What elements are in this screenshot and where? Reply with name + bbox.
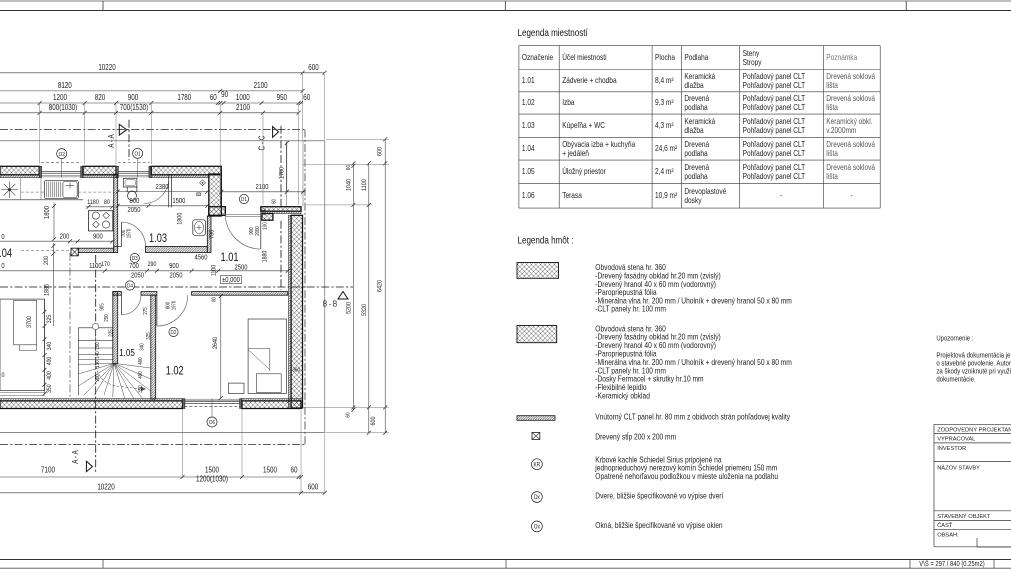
svg-text:800: 800 (165, 302, 172, 309)
svg-text:1.03: 1.03 (522, 120, 535, 130)
svg-text:10,9 m²: 10,9 m² (655, 190, 678, 200)
svg-text:D1: D1 (241, 197, 247, 204)
svg-text:Stropy: Stropy (743, 57, 762, 67)
svg-text:Označenie: Označenie (522, 52, 553, 62)
svg-text:900: 900 (249, 227, 256, 234)
svg-text:1500: 1500 (263, 467, 277, 475)
svg-text:200: 200 (261, 208, 268, 215)
svg-text:60: 60 (291, 467, 298, 475)
svg-text:950: 950 (277, 95, 287, 103)
svg-text:dokumentácie.: dokumentácie. (936, 376, 975, 384)
svg-text:325: 325 (145, 332, 152, 340)
svg-text:600: 600 (376, 146, 384, 156)
svg-text:150: 150 (95, 342, 102, 350)
svg-text:2100: 2100 (236, 104, 250, 112)
svg-text:KR: KR (534, 462, 541, 469)
svg-text:1780: 1780 (177, 95, 191, 103)
svg-text:dlažba: dlažba (684, 125, 704, 135)
svg-text:Pohľadový panel CLT: Pohľadový panel CLT (743, 80, 806, 90)
svg-text:2000: 2000 (255, 226, 262, 236)
svg-text:820: 820 (95, 95, 105, 103)
svg-text:Podlaha: Podlaha (684, 52, 709, 62)
svg-text:Vnútorný CLT panel hr. 80 mm z: Vnútorný CLT panel hr. 80 mm z obidvoch … (595, 412, 790, 422)
svg-text:250: 250 (104, 314, 111, 322)
svg-text:O1: O1 (135, 151, 141, 158)
svg-text:1200: 1200 (53, 95, 67, 103)
svg-text:1100: 1100 (89, 262, 102, 270)
svg-text:80: 80 (104, 198, 111, 206)
svg-text:2100: 2100 (254, 82, 268, 90)
svg-text:v.2000mm: v.2000mm (826, 125, 856, 135)
svg-text:NÁZOV STAVBY: NÁZOV STAVBY (937, 464, 980, 471)
svg-text:dosky: dosky (684, 195, 701, 205)
svg-text:10220: 10220 (97, 484, 114, 492)
svg-text:Zádverie + chodba: Zádverie + chodba (562, 75, 617, 85)
svg-text:Terasa: Terasa (562, 190, 582, 200)
svg-text:0: 0 (1, 233, 5, 241)
svg-text:4560: 4560 (194, 254, 207, 262)
svg-text:2640: 2640 (211, 336, 219, 349)
svg-text:900: 900 (95, 374, 102, 382)
svg-text:340: 340 (46, 342, 53, 350)
svg-text:1100: 1100 (360, 179, 368, 191)
svg-text:lišta: lišta (826, 148, 838, 158)
svg-text:400: 400 (138, 371, 145, 379)
svg-text:200: 200 (60, 233, 70, 241)
svg-text:1040: 1040 (345, 178, 353, 191)
svg-text:Projektová dokumentácia je vyp: Projektová dokumentácia je vypracovaná a… (936, 352, 1011, 360)
svg-text:60: 60 (345, 412, 352, 417)
svg-text:1800: 1800 (43, 206, 51, 219)
svg-text:60: 60 (210, 95, 217, 103)
svg-text:1970: 1970 (171, 300, 178, 310)
svg-text:130: 130 (95, 360, 102, 368)
svg-text:1.05: 1.05 (522, 166, 535, 176)
svg-text:700: 700 (120, 230, 127, 237)
svg-text:1800: 1800 (176, 212, 184, 225)
svg-text:Pohľadový panel CLT: Pohľadový panel CLT (743, 125, 806, 135)
svg-text:800(1030): 800(1030) (49, 104, 77, 112)
svg-text:1000: 1000 (236, 95, 250, 103)
svg-text:600: 600 (308, 484, 318, 492)
svg-text:C - C: C - C (257, 135, 267, 150)
svg-text:400: 400 (46, 357, 53, 365)
svg-text:60: 60 (303, 95, 310, 103)
svg-text:A - A: A - A (70, 450, 80, 464)
svg-text:400: 400 (138, 357, 145, 365)
svg-text:podlaha: podlaha (684, 102, 708, 112)
svg-text:Pohľadový panel CLT: Pohľadový panel CLT (743, 102, 806, 112)
svg-text:8,4 m²: 8,4 m² (655, 75, 674, 85)
svg-text:360: 360 (292, 367, 300, 374)
svg-text:1.04: 1.04 (522, 143, 535, 153)
svg-text:170: 170 (101, 262, 110, 269)
svg-text:2050: 2050 (169, 272, 182, 280)
svg-text:ČASŤ: ČASŤ (937, 521, 953, 529)
svg-text:100: 100 (262, 222, 269, 230)
svg-text:Legenda hmôt :: Legenda hmôt : (518, 235, 574, 246)
svg-text:5320: 5320 (360, 303, 368, 316)
svg-text:325: 325 (46, 315, 53, 323)
svg-text:800: 800 (130, 198, 140, 206)
svg-text:O6: O6 (209, 420, 215, 427)
svg-text:340: 340 (139, 343, 146, 351)
svg-text:Pohľadový panel CLT: Pohľadový panel CLT (743, 148, 806, 158)
svg-text:1200(1030): 1200(1030) (196, 476, 228, 484)
svg-text:±0,000: ±0,000 (222, 276, 240, 284)
svg-text:1.02: 1.02 (166, 366, 184, 378)
svg-text:2050: 2050 (127, 207, 140, 215)
svg-text:700: 700 (129, 262, 139, 270)
svg-text:Účel miestnosti: Účel miestnosti (562, 52, 607, 62)
svg-text:60: 60 (346, 165, 353, 170)
svg-text:1100: 1100 (211, 264, 218, 276)
svg-text:D3: D3 (132, 256, 138, 263)
svg-text:0: 0 (1, 262, 5, 270)
svg-text:1.01: 1.01 (522, 75, 535, 85)
svg-text:200: 200 (42, 255, 50, 265)
svg-text:2380: 2380 (155, 183, 168, 191)
svg-text:STAVEBNÝ OBJEKT: STAVEBNÝ OBJEKT (937, 513, 991, 520)
svg-text:+ jedáleň: + jedáleň (562, 148, 589, 158)
svg-text:900: 900 (128, 95, 138, 103)
svg-text:600: 600 (369, 416, 377, 426)
svg-text:Dvere, bližšie špecifikované v: Dvere, bližšie špecifikované vo výpise d… (595, 491, 724, 501)
svg-text:za škody vzniknuté pri využíva: za škody vzniknuté pri využívaní tejto (936, 368, 1011, 376)
svg-text:Ox: Ox (534, 524, 540, 531)
svg-text:290: 290 (148, 262, 157, 269)
svg-text:V\Š = 297 / 840 (0.25m2): V\Š = 297 / 840 (0.25m2) (919, 558, 984, 568)
svg-text:275: 275 (142, 307, 149, 315)
svg-text:Drevený stĺp 200 x 200 mm: Drevený stĺp 200 x 200 mm (595, 432, 676, 442)
svg-text:90: 90 (221, 91, 228, 99)
svg-text:lišta: lišta (826, 80, 838, 90)
svg-text:225: 225 (108, 329, 115, 337)
svg-text:1.01: 1.01 (220, 252, 238, 264)
svg-text:905: 905 (99, 303, 106, 311)
svg-text:podlaha: podlaha (684, 148, 708, 158)
svg-text:Upozornenie :: Upozornenie : (936, 335, 973, 343)
svg-text:1.03: 1.03 (149, 233, 167, 245)
svg-text:dlažba: dlažba (684, 80, 704, 90)
svg-text:5200: 5200 (345, 301, 353, 314)
svg-text:O2: O2 (59, 151, 65, 158)
svg-text:1180: 1180 (87, 198, 99, 206)
svg-text:D2: D2 (171, 330, 177, 337)
svg-text:780: 780 (208, 229, 216, 239)
svg-text:2100: 2100 (255, 183, 268, 191)
svg-text:Kúpeľňa + WC: Kúpeľňa + WC (562, 120, 605, 130)
svg-text:Úložný priestor: Úložný priestor (562, 166, 606, 176)
svg-text:Poznámka: Poznámka (826, 52, 858, 62)
svg-text:2,4 m²: 2,4 m² (655, 166, 674, 176)
svg-text:B - B: B - B (323, 299, 337, 309)
svg-text:1880: 1880 (262, 250, 269, 262)
svg-text:1500: 1500 (172, 198, 185, 206)
svg-text:1500: 1500 (205, 467, 219, 475)
svg-text:700(1530): 700(1530) (120, 104, 148, 112)
svg-text:-CLT panely hr. 100 mm: -CLT panely hr. 100 mm (595, 304, 666, 314)
svg-text:0: 0 (1, 371, 5, 379)
svg-text:1700: 1700 (278, 166, 286, 179)
svg-text:Plocha: Plocha (655, 52, 676, 62)
svg-text:A - A: A - A (106, 134, 116, 148)
svg-text:OBSAH:: OBSAH: (937, 533, 959, 539)
svg-text:3700: 3700 (25, 315, 33, 328)
svg-text:80: 80 (211, 297, 218, 302)
svg-text:900: 900 (93, 233, 103, 241)
svg-text:-Keramický obklad: -Keramický obklad (595, 391, 650, 401)
svg-text:400: 400 (46, 371, 53, 379)
svg-text:9,3 m²: 9,3 m² (655, 97, 674, 107)
svg-text:2500: 2500 (234, 264, 247, 272)
svg-text:o stavebné povolenie. Autor ne: o stavebné povolenie. Autor nezodpovedá (936, 360, 1011, 368)
svg-text:ZODPOVEDNÝ PROJEKTANT: ZODPOVEDNÝ PROJEKTANT (937, 426, 1011, 433)
svg-text:1.05: 1.05 (119, 347, 135, 358)
svg-text:lišta: lišta (826, 171, 838, 181)
svg-text:D4: D4 (127, 283, 133, 290)
svg-text:7100: 7100 (41, 467, 55, 475)
svg-text:lišta: lišta (826, 102, 838, 112)
svg-text:Pohľadový panel CLT: Pohľadový panel CLT (743, 171, 806, 181)
svg-text:2050: 2050 (131, 272, 144, 280)
svg-text:4,3 m²: 4,3 m² (655, 120, 674, 130)
svg-text:Izba: Izba (562, 97, 575, 107)
svg-text:140: 140 (95, 351, 102, 359)
svg-text:1970: 1970 (126, 228, 133, 238)
svg-text:INVESTOR: INVESTOR (937, 446, 966, 452)
svg-text:900: 900 (169, 262, 179, 270)
svg-text:6420: 6420 (376, 279, 384, 292)
svg-text:Opatrené nehorľavou podložkou: Opatrené nehorľavou podložkou v mieste u… (595, 471, 778, 481)
svg-text:Legenda miestností: Legenda miestností (518, 27, 589, 38)
svg-text:1.04: 1.04 (0, 248, 12, 260)
svg-text:1885: 1885 (43, 283, 51, 296)
svg-text:350: 350 (138, 385, 145, 393)
svg-text:Okná, bližšie špecifikované vo: Okná, bližšie špecifikované vo výpise ok… (595, 520, 722, 530)
svg-text:VYPRACOVAL: VYPRACOVAL (937, 437, 975, 443)
svg-text:10220: 10220 (98, 64, 115, 72)
svg-text:350: 350 (46, 385, 53, 393)
svg-text:1.02: 1.02 (522, 97, 535, 107)
svg-text:60: 60 (271, 199, 278, 204)
svg-text:600: 600 (308, 64, 318, 72)
svg-text:24,6 m²: 24,6 m² (655, 143, 678, 153)
svg-text:podlaha: podlaha (684, 171, 708, 181)
svg-text:8120: 8120 (58, 82, 72, 90)
svg-text:1.06: 1.06 (522, 190, 535, 200)
svg-text:Dx: Dx (534, 495, 540, 502)
